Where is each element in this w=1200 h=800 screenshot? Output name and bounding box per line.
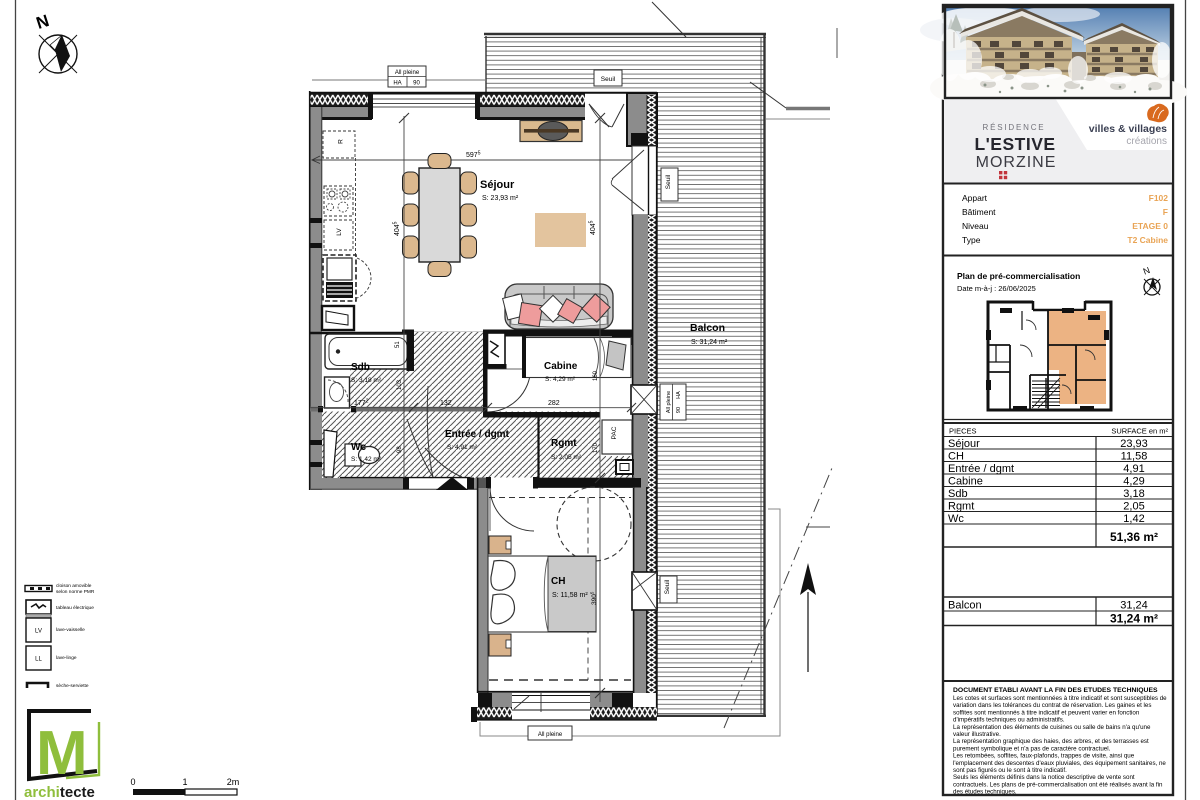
svg-text:F102: F102 — [1149, 193, 1169, 203]
svg-text:Entrée / dgmt: Entrée / dgmt — [445, 429, 510, 440]
svg-text:S: 23,93 m²: S: 23,93 m² — [482, 195, 519, 202]
svg-text:CH: CH — [948, 451, 964, 463]
svg-text:23,93: 23,93 — [1120, 438, 1148, 450]
svg-text:51: 51 — [395, 341, 401, 348]
svg-text:Cabine: Cabine — [948, 476, 983, 488]
svg-text:90: 90 — [413, 81, 420, 87]
svg-text:LL: LL — [35, 657, 42, 663]
svg-text:LV: LV — [35, 629, 42, 635]
svg-text:Entrée / dgmt: Entrée / dgmt — [948, 463, 1014, 475]
svg-text:2m: 2m — [227, 777, 240, 787]
svg-text:MORZINE: MORZINE — [976, 154, 1057, 171]
svg-text:Type: Type — [962, 235, 981, 245]
svg-text:Séjour: Séjour — [480, 179, 515, 191]
svg-text:Appart: Appart — [962, 193, 988, 203]
svg-text:31,24: 31,24 — [1120, 600, 1148, 612]
svg-text:All pleine: All pleine — [538, 732, 563, 738]
svg-text:S: 4,91 m²: S: 4,91 m² — [447, 444, 478, 451]
svg-text:DOCUMENT ETABLI AVANT LA FIN D: DOCUMENT ETABLI AVANT LA FIN DES ETUDES … — [953, 687, 1158, 694]
svg-text:villes & villages: villes & villages — [1089, 123, 1167, 135]
svg-text:HA: HA — [676, 391, 682, 399]
svg-text:PAC: PAC — [611, 426, 618, 439]
svg-text:tableau électrique: tableau électrique — [56, 605, 94, 611]
svg-text:SURFACE en m²: SURFACE en m² — [1111, 427, 1168, 436]
svg-text:51,36 m²: 51,36 m² — [1110, 530, 1158, 544]
svg-text:11,58: 11,58 — [1121, 451, 1148, 463]
svg-text:CH: CH — [551, 576, 565, 587]
svg-text:lave-linge: lave-linge — [56, 655, 77, 661]
svg-text:Cabine: Cabine — [544, 361, 578, 372]
svg-text:Rgmt: Rgmt — [948, 501, 974, 513]
svg-text:Niveau: Niveau — [962, 221, 989, 231]
svg-text:90: 90 — [676, 407, 682, 413]
svg-text:purement symbolique et n'a pas: purement symbolique et n'a pas de caract… — [953, 745, 1111, 752]
svg-text:La représentation des éléments: La représentation des éléments de cuisin… — [953, 724, 1151, 731]
svg-text:valeur illustrative.: valeur illustrative. — [953, 731, 1001, 738]
svg-text:282: 282 — [548, 400, 560, 407]
svg-text:Seuls les éléments définis dan: Seuls les éléments définis dans la notic… — [953, 774, 1135, 781]
svg-text:Balcon: Balcon — [948, 600, 982, 612]
svg-text:des études techniques.: des études techniques. — [953, 789, 1017, 796]
svg-text:architecte: architecte — [24, 784, 95, 800]
svg-text:selon norme PMR: selon norme PMR — [56, 589, 95, 595]
svg-text:PIECES: PIECES — [949, 427, 977, 436]
svg-text:Plan de pré-commercialisation: Plan de pré-commercialisation — [957, 271, 1080, 281]
svg-text:Sdb: Sdb — [351, 362, 370, 373]
svg-text:Balcon: Balcon — [690, 322, 725, 334]
svg-text:d'impératifs techniques ou adm: d'impératifs techniques ou administratif… — [953, 717, 1065, 724]
svg-text:0: 0 — [130, 777, 135, 787]
svg-text:sèche-serviette: sèche-serviette — [56, 683, 89, 689]
svg-text:cloison amovible: cloison amovible — [56, 583, 92, 589]
svg-text:Sdb: Sdb — [948, 488, 968, 500]
svg-text:Seuil: Seuil — [601, 76, 616, 83]
svg-text:L'ESTIVE: L'ESTIVE — [974, 134, 1055, 154]
svg-text:132: 132 — [440, 400, 452, 407]
svg-text:R: R — [338, 139, 345, 144]
svg-text:S: 31,24 m²: S: 31,24 m² — [691, 339, 728, 346]
svg-text:Date m-à-j : 26/06/2025: Date m-à-j : 26/06/2025 — [957, 284, 1036, 293]
svg-text:Les cotes et surfaces sont men: Les cotes et surfaces sont mentionnées à… — [953, 695, 1167, 702]
svg-text:T2 Cabine: T2 Cabine — [1127, 235, 1168, 245]
svg-text:31,24 m²: 31,24 m² — [1110, 612, 1158, 626]
svg-text:l'emplacement des descentes d': l'emplacement des descentes d'eaux pluvi… — [953, 760, 1166, 767]
svg-text:Wc: Wc — [351, 442, 366, 453]
svg-text:103: 103 — [397, 379, 403, 390]
svg-text:soffites sont mentionnés à tit: soffites sont mentionnés à titre indicat… — [953, 709, 1140, 716]
svg-text:S: 3,18 m²: S: 3,18 m² — [351, 377, 382, 384]
svg-text:contractuels. Les plans de pré: contractuels. Les plans de pré-commercia… — [953, 781, 1163, 788]
svg-text:All pleine: All pleine — [666, 391, 672, 413]
svg-text:S: 11,58 m²: S: 11,58 m² — [552, 592, 588, 599]
svg-text:3,18: 3,18 — [1123, 488, 1144, 500]
svg-text:RÉSIDENCE: RÉSIDENCE — [983, 123, 1046, 132]
svg-text:1: 1 — [182, 777, 187, 787]
svg-text:4,29: 4,29 — [1123, 476, 1144, 488]
svg-text:Rgmt: Rgmt — [551, 438, 577, 449]
svg-text:1,42: 1,42 — [1123, 513, 1144, 525]
svg-text:La représentation graphique de: La représentation graphique des haies, d… — [953, 738, 1149, 745]
svg-text:Séjour: Séjour — [948, 438, 980, 450]
svg-text:S: 2,05 m²: S: 2,05 m² — [551, 454, 582, 461]
svg-text:160: 160 — [593, 370, 599, 381]
svg-text:Seuil: Seuil — [664, 579, 671, 594]
svg-text:variation dans les tolérances: variation dans les tolérances du contrat… — [953, 702, 1151, 709]
svg-text:S: 1,42 m²: S: 1,42 m² — [351, 456, 382, 463]
svg-text:HA: HA — [393, 81, 401, 87]
svg-text:S: 4,29 m²: S: 4,29 m² — [545, 376, 576, 383]
svg-text:All pleine: All pleine — [395, 70, 420, 76]
svg-text:98: 98 — [397, 446, 403, 453]
svg-text:4,91: 4,91 — [1123, 463, 1144, 475]
svg-text:F: F — [1163, 207, 1168, 217]
svg-text:Wc: Wc — [948, 513, 964, 525]
svg-text:Seuil: Seuil — [665, 174, 672, 189]
svg-text:LV: LV — [336, 228, 343, 236]
svg-text:créations: créations — [1126, 136, 1167, 147]
svg-text:Bâtiment: Bâtiment — [962, 207, 996, 217]
svg-text:ETAGE 0: ETAGE 0 — [1132, 221, 1168, 231]
svg-text:sont pas figurés ou le sont à: sont pas figurés ou le sont à titre indi… — [953, 767, 1067, 774]
svg-text:Les retombées, soffites, faux-: Les retombées, soffites, faux-plafonds, … — [953, 753, 1135, 760]
svg-text:lave-vaisselle: lave-vaisselle — [56, 627, 85, 633]
svg-text:170: 170 — [593, 442, 599, 453]
svg-text:2,05: 2,05 — [1123, 501, 1144, 513]
